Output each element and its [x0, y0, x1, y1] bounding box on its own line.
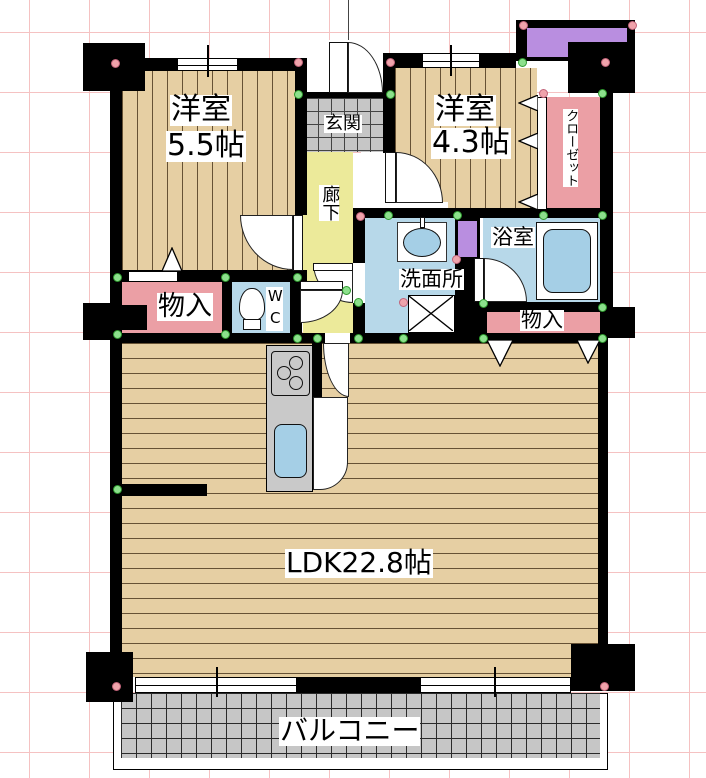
- junction-dot: [293, 273, 302, 282]
- wall-block-left-b: [113, 305, 147, 330]
- junction-dot: [354, 298, 363, 307]
- junction-dot: [342, 286, 351, 295]
- corner-dot: [519, 21, 528, 30]
- washroom-door-leaf: [313, 263, 353, 271]
- toilet-base-icon: [243, 319, 261, 330]
- junction-dot: [384, 211, 393, 220]
- kitchen-sink: [274, 424, 307, 478]
- wall-hall-west: [295, 58, 307, 215]
- corner-dot: [112, 682, 121, 691]
- junction-dot: [598, 303, 607, 312]
- junction-dot: [386, 90, 395, 99]
- closet-door-triangle-3: [518, 194, 538, 210]
- washbasin-faucet: [420, 217, 425, 228]
- bathroom-label: 浴室: [491, 227, 535, 248]
- closet-door-track: [537, 97, 547, 210]
- opening-hall-ldk: [325, 333, 350, 343]
- storage-left-label: 物入: [157, 293, 213, 321]
- storage-right-triangle-1: [487, 340, 513, 367]
- junction-dot: [598, 211, 607, 220]
- junction-dot: [313, 334, 322, 343]
- corner-dot: [601, 58, 610, 67]
- room-western-4_3-size: 4.3帖: [431, 128, 511, 159]
- washbasin-bowl: [403, 228, 441, 257]
- junction-dot: [399, 334, 408, 343]
- toilet-bowl-icon: [239, 288, 265, 321]
- wall-entry-east-pillar: [383, 53, 395, 153]
- opening-storage-left: [128, 271, 178, 282]
- corner-dot: [294, 58, 303, 67]
- toilet-label: WC: [266, 287, 283, 331]
- wall-kitchen-segment: [312, 343, 322, 397]
- wall-storage-wc-divider: [222, 282, 232, 333]
- balcony-label: バルコニー: [279, 717, 420, 746]
- room-western-4_3-name: 洋室: [434, 95, 496, 126]
- window-room1-tick: [207, 45, 209, 77]
- corner-dot: [111, 59, 120, 68]
- storage-left-triangle: [162, 247, 182, 271]
- room1-door-leaf: [293, 215, 303, 271]
- storage-right-label: 物入: [520, 310, 564, 331]
- meter-box-strip: [566, 28, 627, 42]
- junction-dot: [518, 58, 527, 67]
- junction-dot: [113, 485, 122, 494]
- corner-dot: [628, 21, 637, 30]
- doorway-threshold: [361, 152, 385, 210]
- opening-washroom-door: [353, 263, 365, 303]
- junction-dot: [294, 90, 303, 99]
- junction-dot: [113, 330, 122, 339]
- junction-dot: [479, 334, 488, 343]
- junction-dot: [113, 273, 122, 282]
- corner-dot: [452, 255, 461, 264]
- wall-left: [110, 58, 122, 679]
- kitchen-return: [313, 397, 348, 490]
- junction-dot: [221, 273, 230, 282]
- window-room2-tick: [450, 45, 452, 76]
- corner-dot: [600, 682, 609, 691]
- wall-ldk-east: [598, 338, 608, 644]
- junction-dot: [354, 334, 363, 343]
- washing-machine-pan: [408, 295, 455, 333]
- room-ldk-floor: [122, 343, 598, 677]
- hallway-label: 廊下: [319, 185, 339, 221]
- closet-door-triangle-2: [518, 133, 538, 149]
- floor-plan-canvas: 洋室 5.5帖 洋室 4.3帖 LDK22.8帖 バルコニー 玄関 廊下 クロー…: [0, 0, 706, 778]
- wall-corner-bottom-left: [86, 652, 133, 702]
- wall-block-top-right-ext: [568, 50, 635, 93]
- window-ldk-left-tick: [216, 667, 218, 697]
- corner-dot: [399, 298, 408, 307]
- pipe-space: [458, 221, 477, 257]
- junction-dot: [479, 299, 488, 308]
- wc-door-leaf: [300, 281, 343, 290]
- stove-burner-2: [277, 366, 291, 380]
- junction-dot: [598, 89, 607, 98]
- wall-block-left-a: [83, 303, 113, 340]
- junction-dot: [453, 211, 462, 220]
- wall-ldk-stub: [120, 484, 207, 496]
- washroom-label: 洗面所: [399, 269, 464, 290]
- wall-right-upper: [600, 93, 613, 307]
- stove-burner-3: [289, 376, 303, 390]
- wall-bottom-mid: [297, 677, 420, 693]
- room-western-5_5-name: 洋室: [170, 95, 232, 126]
- storage-right-triangle-2: [577, 340, 600, 364]
- bathtub-inner: [543, 229, 591, 293]
- room-ldk-label: LDK22.8帖: [285, 549, 433, 578]
- entry-door-leaf: [329, 42, 348, 93]
- room-western-5_5-size: 5.5帖: [166, 131, 246, 162]
- bathroom-door-leaf: [474, 258, 484, 302]
- entrance-label: 玄関: [324, 115, 362, 133]
- corner-dot: [356, 212, 365, 221]
- closet-door-triangle-1: [518, 95, 538, 111]
- room2-door-leaf: [385, 152, 396, 203]
- junction-dot: [221, 330, 230, 339]
- wall-right-block: [600, 307, 635, 338]
- meter-box: [527, 28, 568, 57]
- junction-dot: [293, 334, 302, 343]
- junction-dot: [539, 211, 548, 220]
- junction-dot: [598, 334, 607, 343]
- stove-burner-1: [289, 356, 303, 370]
- corner-dot: [539, 89, 548, 98]
- corner-dot: [386, 58, 395, 67]
- closet-label: クローゼット: [563, 109, 578, 187]
- window-ldk-right-tick: [494, 667, 496, 697]
